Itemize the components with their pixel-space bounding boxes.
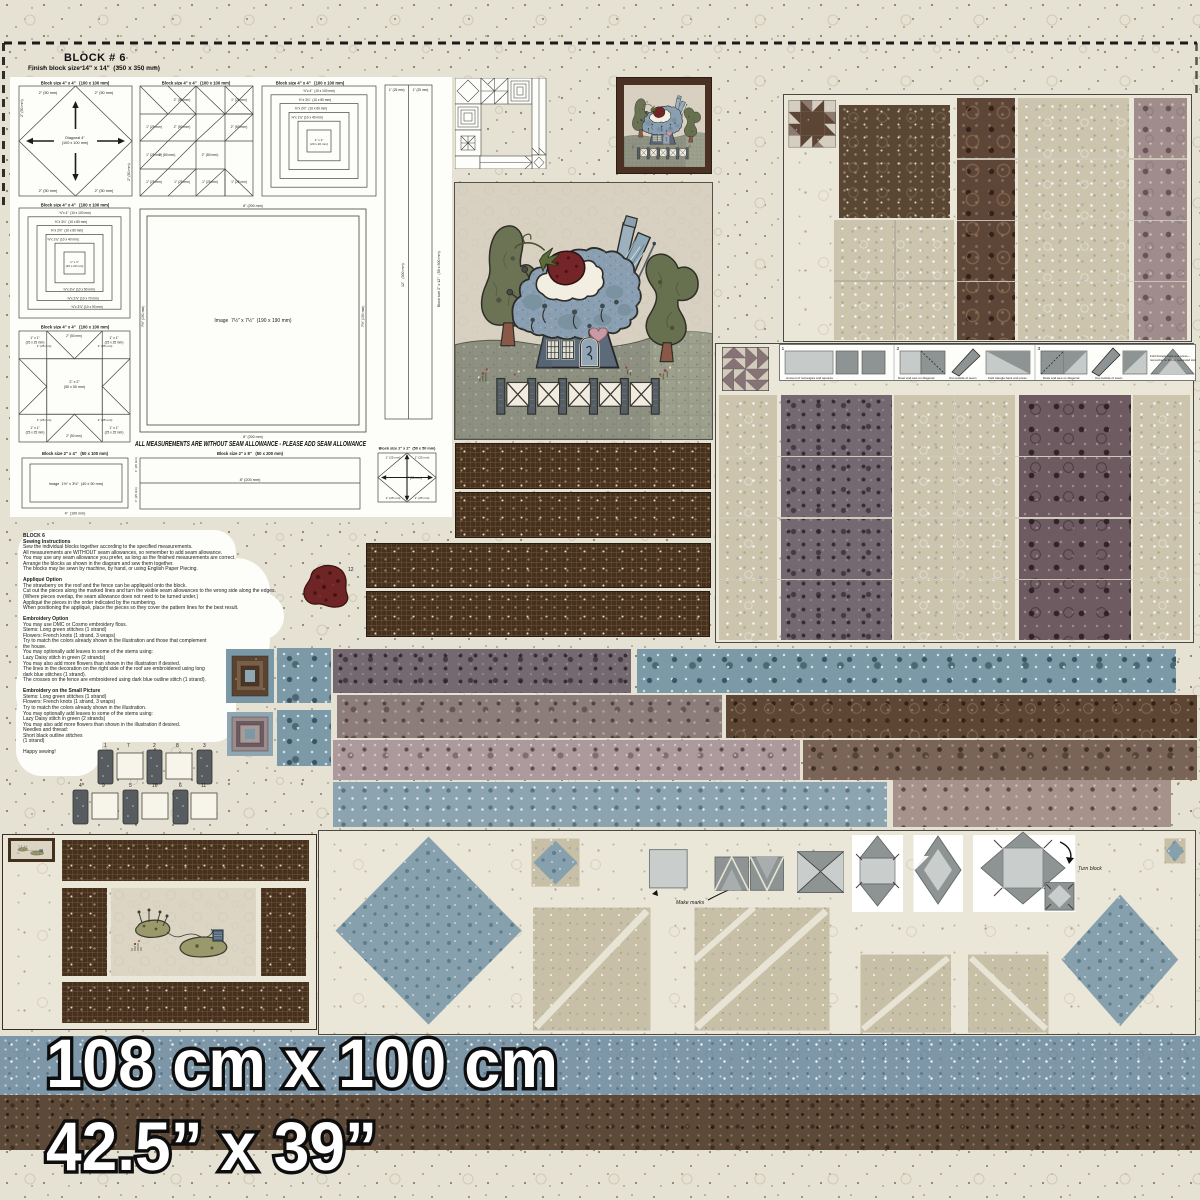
svg-text:1: 1	[104, 743, 107, 749]
svg-text:2" x 2": 2" x 2"	[69, 380, 80, 384]
svg-text:1" (25 mm): 1" (25 mm)	[146, 153, 162, 157]
svg-text:5: 5	[129, 783, 132, 789]
svg-text:(25 x 25 mm): (25 x 25 mm)	[105, 431, 124, 435]
svg-text:1" x 1": 1" x 1"	[30, 336, 39, 340]
svg-text:Image 7½" x 7½" (190 x 190 m: Image 7½" x 7½" (190 x 190 mm)	[214, 317, 292, 324]
svg-text:2" (50 mm): 2" (50 mm)	[20, 99, 24, 117]
svg-text:1" (25 mm): 1" (25 mm)	[389, 88, 405, 92]
svg-text:12: 12	[348, 567, 354, 573]
svg-text:Amount of rectangles and squar: Amount of rectangles and squares	[786, 376, 833, 380]
svg-text:Cut outside of seam: Cut outside of seam	[949, 376, 977, 380]
svg-text:Block size 2" x 12" (50 x 30: Block size 2" x 12" (50 x 300 mm)	[437, 251, 441, 307]
svg-text:1" x 1": 1" x 1"	[109, 426, 118, 430]
svg-text:Block size 4" x 4" (100 x 10: Block size 4" x 4" (100 x 100 mm)	[162, 81, 231, 86]
svg-text:4: 4	[79, 783, 82, 789]
svg-text:⅜"x 2⅛" (10 x 50 mm): ⅜"x 2⅛" (10 x 50 mm)	[63, 288, 95, 292]
svg-text:7: 7	[127, 743, 130, 749]
svg-text:6: 6	[179, 783, 182, 789]
svg-text:⅜"x 3¼" (10 x 80 mm): ⅜"x 3¼" (10 x 80 mm)	[299, 98, 331, 102]
svg-text:1" (25 mm): 1" (25 mm)	[146, 180, 162, 184]
svg-text:1" (25 mm): 1" (25 mm)	[231, 98, 247, 102]
svg-text:Draw and sew on diagonal: Draw and sew on diagonal	[1043, 376, 1080, 380]
svg-text:Block size 2" x 2" (50 x 50 m: Block size 2" x 2" (50 x 50 mm)	[379, 447, 437, 451]
svg-text:⅜"x 3⅞" (10 x 90 mm): ⅜"x 3⅞" (10 x 90 mm)	[71, 305, 103, 309]
svg-text:1" (25 mm): 1" (25 mm)	[386, 496, 401, 500]
svg-text:Turn block: Turn block	[1078, 866, 1102, 872]
svg-text:108 cm x 100 cm: 108 cm x 100 cm	[46, 1025, 558, 1102]
svg-text:⅜"x 2½" (10 x 60 mm): ⅜"x 2½" (10 x 60 mm)	[295, 107, 327, 111]
svg-text:1" (25 mm): 1" (25 mm)	[134, 487, 138, 502]
svg-text:Make marks: Make marks	[676, 900, 705, 906]
svg-text:2" (50 mm): 2" (50 mm)	[95, 189, 114, 193]
svg-text:1" (25 mm): 1" (25 mm)	[37, 418, 52, 422]
svg-text:(20 x 20 mm): (20 x 20 mm)	[66, 264, 84, 268]
svg-text:⅜"x 3¼" (10 x 80 mm): ⅜"x 3¼" (10 x 80 mm)	[55, 220, 87, 224]
svg-text:2" (50 mm): 2" (50 mm)	[231, 125, 248, 129]
svg-text:1" (25 mm): 1" (25 mm)	[134, 457, 138, 472]
svg-text:10: 10	[152, 783, 158, 789]
svg-text:2" (50 mm): 2" (50 mm)	[66, 434, 82, 438]
svg-text:⅜"x 2½" (10 x 60 mm): ⅜"x 2½" (10 x 60 mm)	[51, 229, 83, 233]
svg-text:1" (25 mm): 1" (25 mm)	[413, 88, 429, 92]
svg-text:2" (50 mm): 2" (50 mm)	[127, 163, 131, 181]
svg-text:12" (300 mm): 12" (300 mm)	[401, 263, 405, 287]
svg-text:1" (25 mm): 1" (25 mm)	[415, 456, 430, 460]
svg-text:⅜"x 1¾" (10 x 40 mm): ⅜"x 1¾" (10 x 40 mm)	[291, 115, 323, 119]
svg-text:Block size 4" x 4" (100 x 10: Block size 4" x 4" (100 x 100 mm)	[41, 81, 110, 86]
svg-text:2" (50 mm): 2" (50 mm)	[406, 476, 422, 480]
svg-text:7½" (190 mm): 7½" (190 mm)	[361, 306, 365, 327]
svg-text:1" (25 mm): 1" (25 mm)	[98, 418, 113, 422]
svg-text:1" (25 mm): 1" (25 mm)	[386, 456, 401, 460]
svg-text:1" x 1": 1" x 1"	[109, 336, 118, 340]
svg-text:2" (50 mm): 2" (50 mm)	[95, 91, 114, 95]
svg-text:Cut outside of seam: Cut outside of seam	[1095, 376, 1123, 380]
svg-text:1" (25 mm): 1" (25 mm)	[231, 180, 247, 184]
svg-text:1" (25 mm): 1" (25 mm)	[146, 125, 162, 129]
svg-text:Block size 2" x 8" (50 x 200: Block size 2" x 8" (50 x 200 mm)	[217, 451, 284, 456]
svg-text:7½" (190 mm): 7½" (190 mm)	[141, 306, 145, 327]
svg-text:2" (50 mm): 2" (50 mm)	[202, 153, 219, 157]
svg-text:ALL MEASUREMENTS ARE WITHOUT S: ALL MEASUREMENTS ARE WITHOUT SEAM ALLOWA…	[134, 439, 366, 448]
svg-text:1" (25 mm): 1" (25 mm)	[98, 344, 113, 348]
svg-text:(20 x 20 mm): (20 x 20 mm)	[310, 142, 328, 146]
svg-text:⅜"x 1¾" (10 x 40 mm): ⅜"x 1¾" (10 x 40 mm)	[47, 237, 79, 241]
svg-text:2" (50 mm): 2" (50 mm)	[39, 91, 58, 95]
svg-text:⅜"x 4" (10 x 100 mm): ⅜"x 4" (10 x 100 mm)	[59, 211, 91, 215]
svg-text:⅜"x 4" (10 x 100 mm): ⅜"x 4" (10 x 100 mm)	[303, 89, 335, 93]
svg-text:42.5” x 39”: 42.5” x 39”	[46, 1108, 377, 1185]
svg-text:1" (25 mm): 1" (25 mm)	[174, 180, 190, 184]
svg-text:Image 1½" x 3½" (40 x 90 mm): Image 1½" x 3½" (40 x 90 mm)	[49, 482, 104, 486]
svg-text:1" (25 mm): 1" (25 mm)	[202, 180, 218, 184]
svg-text:4" (100 mm): 4" (100 mm)	[65, 512, 86, 516]
svg-text:2" (50 mm): 2" (50 mm)	[39, 189, 58, 193]
svg-text:11: 11	[201, 783, 206, 789]
svg-text:2" (50 mm): 2" (50 mm)	[174, 98, 191, 102]
svg-text:2: 2	[896, 346, 899, 352]
svg-text:Block size 4" x 4" (100 x 10: Block size 4" x 4" (100 x 100 mm)	[276, 81, 345, 86]
svg-text:⅜"x 2⅞" (10 x 70 mm): ⅜"x 2⅞" (10 x 70 mm)	[67, 296, 99, 300]
svg-text:(100 x 100 mm): (100 x 100 mm)	[62, 141, 89, 145]
svg-text:1: 1	[781, 346, 784, 352]
svg-text:(25 x 25 mm): (25 x 25 mm)	[26, 431, 45, 435]
svg-text:1" (25 mm): 1" (25 mm)	[415, 496, 430, 500]
svg-text:Fold triangle back and press: Fold triangle back and press	[988, 376, 1027, 380]
svg-text:Block size 2" x 4" (50 x 100: Block size 2" x 4" (50 x 100 mm)	[42, 451, 109, 456]
svg-text:2" (50 mm): 2" (50 mm)	[66, 334, 82, 338]
svg-text:8" (200 mm): 8" (200 mm)	[240, 478, 261, 482]
svg-text:Diagonal 4": Diagonal 4"	[65, 136, 85, 140]
svg-text:1" x 1": 1" x 1"	[30, 426, 39, 430]
svg-text:remember to trim to requested: remember to trim to requested size	[1150, 358, 1196, 362]
svg-text:2" (50 mm): 2" (50 mm)	[174, 125, 191, 129]
svg-text:Block size 4" x 4" (100 x 10: Block size 4" x 4" (100 x 100 mm)	[41, 203, 110, 208]
svg-text:8" (200 mm): 8" (200 mm)	[243, 204, 263, 208]
svg-text:3: 3	[203, 743, 206, 749]
svg-text:1" (25 mm): 1" (25 mm)	[37, 344, 52, 348]
svg-text:Block size 4" x 4" (100 x 10: Block size 4" x 4" (100 x 100 mm)	[41, 325, 110, 330]
svg-text:8: 8	[176, 743, 179, 749]
svg-text:3: 3	[1037, 346, 1040, 352]
svg-text:2: 2	[153, 743, 156, 749]
svg-text:Draw and sew on diagonal: Draw and sew on diagonal	[898, 376, 935, 380]
svg-text:9: 9	[102, 783, 105, 789]
svg-text:(50 x 50 mm): (50 x 50 mm)	[64, 385, 85, 389]
